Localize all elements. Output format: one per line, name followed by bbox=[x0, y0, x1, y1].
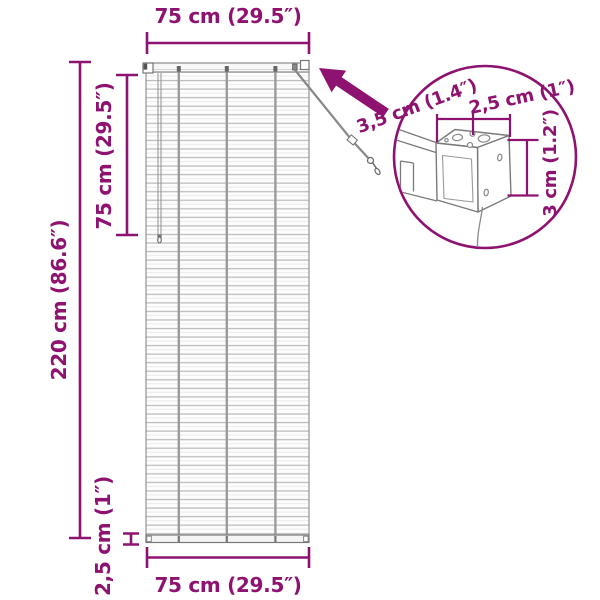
bracket-detail-drawing bbox=[393, 128, 511, 249]
cord-anchor bbox=[177, 66, 181, 72]
dim-bottom-rail-label: 2,5 cm (1″) bbox=[93, 476, 113, 596]
venetian-blind bbox=[143, 61, 381, 543]
dim-upper-height-line bbox=[116, 75, 138, 235]
dim-bottom-width-line bbox=[147, 547, 309, 568]
dim-bottom-rail-line bbox=[123, 534, 139, 545]
cord-anchor bbox=[273, 66, 277, 72]
detail-cord bbox=[477, 207, 482, 248]
wand-anchor bbox=[293, 64, 298, 70]
dim-top-width-line bbox=[147, 32, 309, 54]
dim-upper-height-label: 75 cm (29.5″) bbox=[94, 82, 114, 229]
bracket-side-face bbox=[478, 136, 512, 213]
dim-detail-height-label: 3 cm (1.2″) bbox=[542, 109, 560, 217]
dim-top-width-label: 75 cm (29.5″) bbox=[154, 6, 301, 26]
cord-anchor bbox=[225, 66, 229, 72]
dim-total-height-line bbox=[69, 62, 91, 538]
blind-dimensions-diagram: 75 cm (29.5″) 220 cm (86.6″) 75 cm (29.5… bbox=[0, 0, 600, 600]
dim-total-height-label: 220 cm (86.6″) bbox=[49, 220, 69, 381]
headrail-right-cap bbox=[301, 61, 310, 70]
dim-bottom-width-label: 75 cm (29.5″) bbox=[154, 575, 301, 595]
